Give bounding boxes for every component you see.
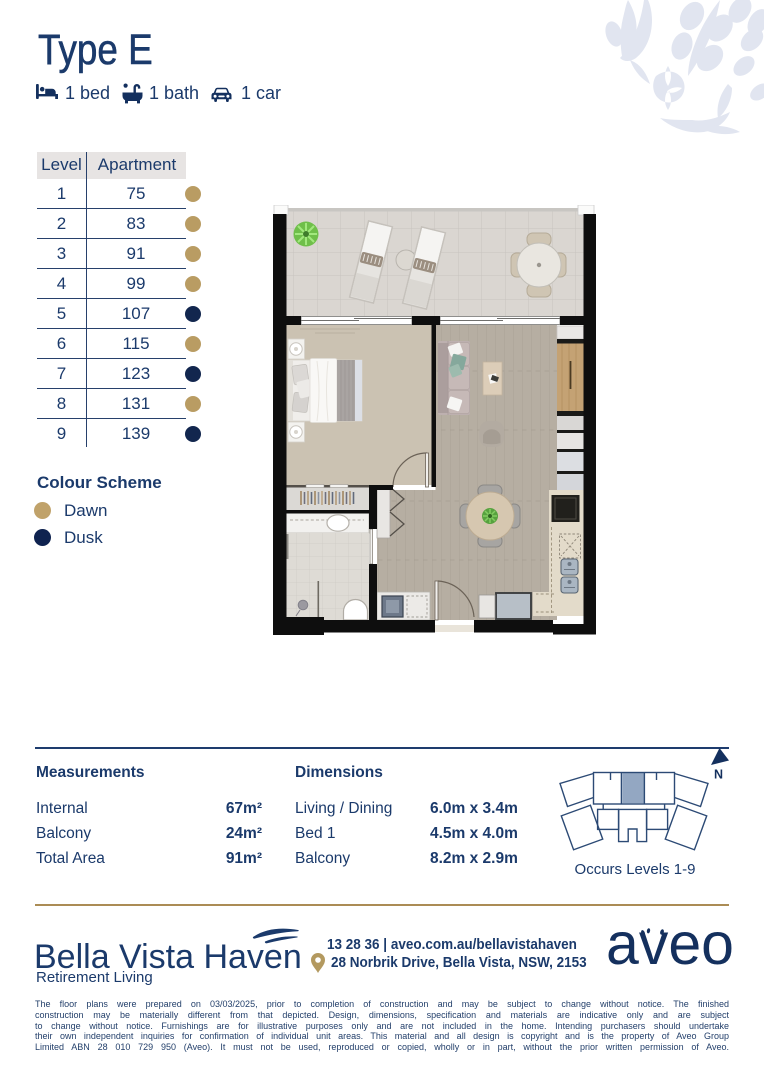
svg-text:N: N	[714, 768, 723, 782]
